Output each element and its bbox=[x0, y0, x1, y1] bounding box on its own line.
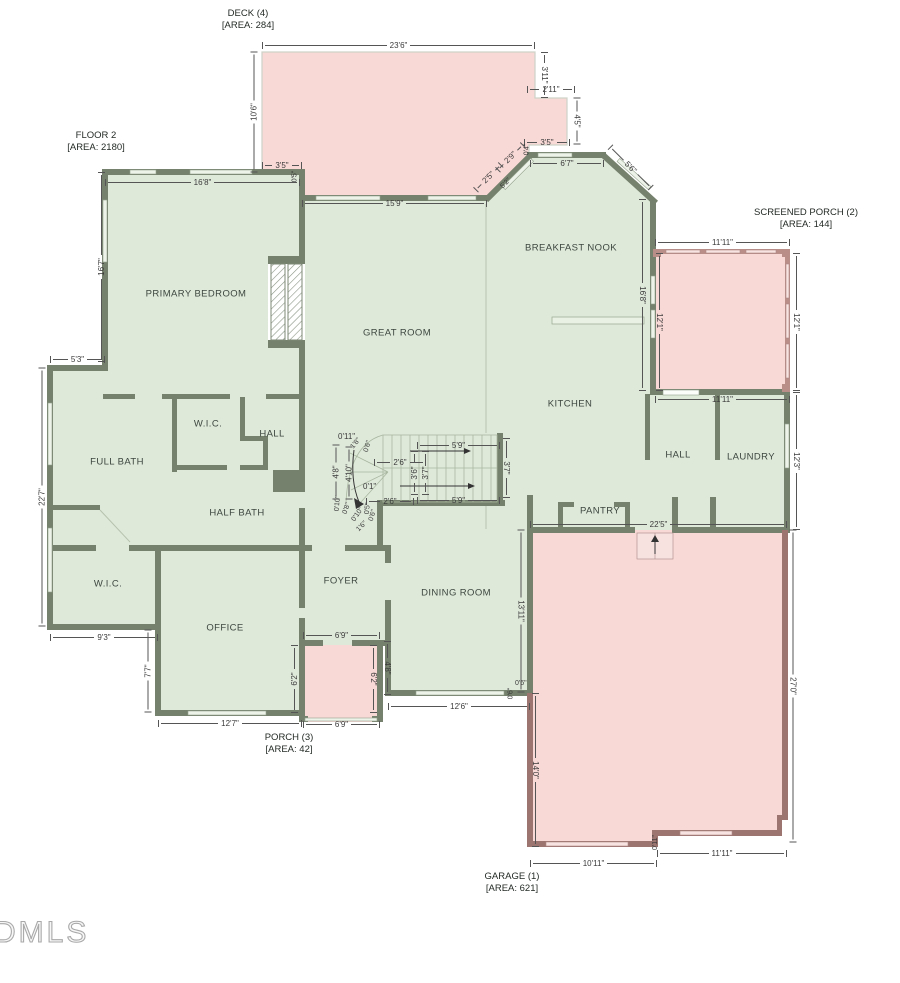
area-label-floor: FLOOR 2 [AREA: 2180] bbox=[67, 130, 125, 155]
dim-left-side: 22'7" bbox=[37, 368, 47, 627]
dim-deck-bottom-right: 3'5" bbox=[524, 137, 570, 147]
dim-porch-left: 6'2" bbox=[289, 645, 299, 713]
dim-winder-a: 0'10" bbox=[334, 495, 342, 511]
room-label-hall-left: HALL bbox=[259, 429, 284, 440]
room-label-dining-room: DINING ROOM bbox=[421, 588, 491, 599]
dmls-watermark: DMLS bbox=[0, 916, 89, 950]
area-sporch-name: SCREENED PORCH (2) bbox=[754, 207, 858, 219]
dim-sporch-right: 12'1" bbox=[792, 253, 802, 391]
area-porch-name: PORCH (3) bbox=[265, 732, 314, 744]
dim-deck-right-lower: 4'5" bbox=[573, 98, 583, 145]
dim-porch-side: 4'8" bbox=[383, 641, 393, 695]
dim-great-room-top: 15'9" bbox=[302, 198, 487, 208]
room-label-wic-upper: W.I.C. bbox=[194, 419, 222, 430]
area-floor-name: FLOOR 2 bbox=[67, 130, 125, 142]
room-label-laundry: LAUNDRY bbox=[727, 452, 775, 463]
room-label-kitchen: KITCHEN bbox=[548, 399, 593, 410]
room-label-half-bath: HALF BATH bbox=[209, 508, 264, 519]
dim-deck-notch: 2'11" bbox=[527, 84, 575, 94]
dim-deck-corner: 0'4" bbox=[523, 144, 530, 156]
dim-office-left: 7'7" bbox=[143, 630, 153, 713]
dim-garage-top: 22'5" bbox=[530, 519, 787, 529]
room-label-breakfast-nook: BREAKFAST NOOK bbox=[525, 243, 617, 254]
dim-porch-bottom: 6'9" bbox=[303, 719, 380, 729]
dim-garage-step: 0'11" bbox=[652, 835, 659, 850]
dim-deck-bottom-left: 3'5" bbox=[262, 160, 302, 170]
dim-stair-top-run: 5'9" bbox=[417, 440, 500, 450]
dim-bedroom-top: 16'8" bbox=[105, 177, 300, 187]
dim-dining-corner-h: 0'6" bbox=[515, 680, 527, 687]
room-label-full-bath: FULL BATH bbox=[90, 457, 144, 468]
room-label-office: OFFICE bbox=[206, 623, 243, 634]
area-garage-size: [AREA: 621] bbox=[485, 883, 540, 895]
area-label-porch: PORCH (3) [AREA: 42] bbox=[265, 732, 314, 757]
area-sporch-size: [AREA: 144] bbox=[754, 219, 858, 231]
dim-porch-inner: 6'2" bbox=[369, 645, 379, 713]
room-label-foyer: FOYER bbox=[324, 576, 359, 587]
dim-sporch-bottom: 11'11" bbox=[655, 394, 790, 404]
dim-deck-step: 0'5" bbox=[291, 171, 298, 183]
area-label-deck: DECK (4) [AREA: 284] bbox=[222, 8, 274, 33]
area-label-screened-porch: SCREENED PORCH (2) [AREA: 144] bbox=[754, 207, 858, 232]
room-label-pantry: PANTRY bbox=[580, 506, 620, 517]
area-deck-size: [AREA: 284] bbox=[222, 20, 274, 32]
dim-sporch-left: 12'1" bbox=[655, 253, 665, 391]
dim-stair-width-b: 3'7" bbox=[420, 451, 430, 495]
room-label-great-room: GREAT ROOM bbox=[363, 328, 431, 339]
dim-deck-left: 10'6" bbox=[249, 52, 259, 173]
dim-stair-left: 4'8" bbox=[331, 445, 341, 500]
dim-sporch-top: 11'11" bbox=[655, 237, 790, 247]
dim-garage-bottom-left: 10'11" bbox=[530, 858, 657, 868]
dim-kitchen-side: 16'8" bbox=[638, 199, 648, 391]
dim-stair-tiny: 0'1" bbox=[363, 482, 376, 491]
dim-deck-right-upper: 3'11" bbox=[540, 52, 550, 98]
fireplace bbox=[268, 264, 305, 340]
dim-bedroom-left: 16'7" bbox=[96, 172, 106, 362]
area-porch-size: [AREA: 42] bbox=[265, 744, 314, 756]
kitchen-counter bbox=[552, 317, 644, 324]
floor-plan: PRIMARY BEDROOM GREAT ROOM BREAKFAST NOO… bbox=[0, 0, 900, 983]
dim-porch-top: 6'9" bbox=[303, 630, 380, 640]
area-label-garage: GARAGE (1) [AREA: 621] bbox=[485, 871, 540, 896]
room-label-wic-lower: W.I.C. bbox=[94, 579, 122, 590]
floorplan-canvas bbox=[0, 0, 900, 983]
dim-dining-right: 13'11" bbox=[517, 530, 527, 693]
dim-deck-top: 23'6" bbox=[262, 40, 535, 50]
dim-garage-bottom-right: 11'11" bbox=[657, 848, 787, 858]
dim-nook-top: 6'7" bbox=[530, 158, 604, 168]
area-deck-name: DECK (4) bbox=[222, 8, 274, 20]
dim-stair-right: 3'7" bbox=[502, 438, 512, 498]
dim-stair-top: 0'11" bbox=[338, 432, 355, 441]
dim-dining-corner-v: 0'6" bbox=[507, 688, 514, 700]
area-garage-name: GARAGE (1) bbox=[485, 871, 540, 883]
dim-office-bottom: 12'7" bbox=[158, 718, 302, 728]
dim-stair-left-inner: 4'10" bbox=[344, 447, 354, 500]
area-floor-size: [AREA: 2180] bbox=[67, 142, 125, 154]
dim-garage-left: 14'0" bbox=[531, 693, 541, 847]
dim-stair-tread-bottom: 2'6" bbox=[366, 496, 414, 506]
dim-stair-width-a: 3'6" bbox=[409, 451, 419, 495]
dim-stair-bottom-run: 5'9" bbox=[417, 495, 500, 505]
dim-garage-right: 27'0" bbox=[789, 530, 799, 843]
room-label-hall-right: HALL bbox=[665, 450, 690, 461]
dim-laundry-side: 12'3" bbox=[792, 392, 802, 530]
garage-steps bbox=[637, 533, 673, 559]
dim-dining-bottom: 12'6" bbox=[388, 701, 530, 711]
room-label-primary-bedroom: PRIMARY BEDROOM bbox=[146, 289, 247, 300]
